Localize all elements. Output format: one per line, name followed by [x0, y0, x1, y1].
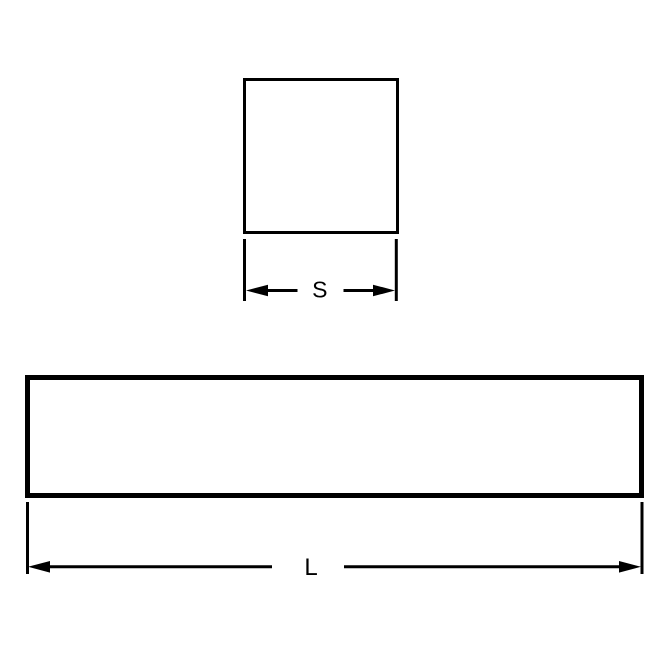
svg-text:L: L	[304, 554, 317, 581]
svg-text:S: S	[312, 276, 327, 302]
